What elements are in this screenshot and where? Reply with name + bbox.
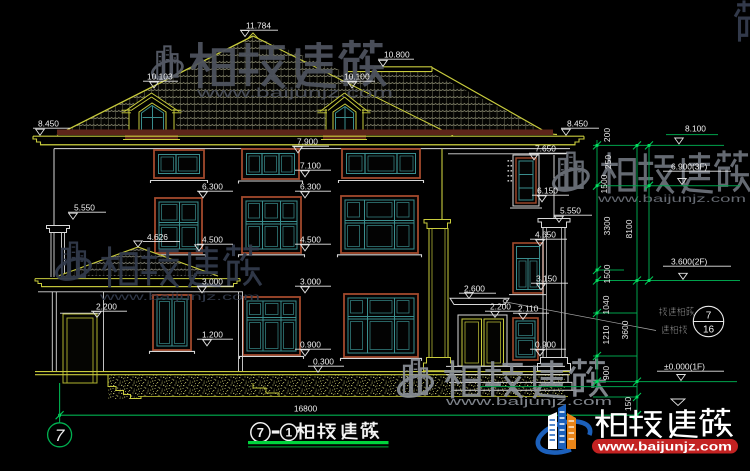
svg-text:±0.000(1F): ±0.000(1F)	[664, 362, 705, 372]
svg-text:250: 250	[603, 155, 613, 169]
svg-text:6.300: 6.300	[202, 182, 223, 192]
svg-text:1: 1	[285, 426, 292, 440]
svg-text:1040: 1040	[601, 295, 611, 314]
svg-text:3600: 3600	[620, 320, 630, 339]
svg-text:7.650: 7.650	[535, 144, 556, 154]
svg-text:3.000: 3.000	[300, 277, 321, 287]
svg-text:0.900: 0.900	[300, 340, 321, 350]
svg-text:7: 7	[55, 426, 65, 445]
svg-text:1.200: 1.200	[202, 330, 223, 340]
svg-text:7: 7	[706, 311, 712, 322]
svg-text:1210: 1210	[601, 325, 611, 344]
svg-text:2.110: 2.110	[518, 304, 539, 314]
svg-text:6.900(3F): 6.900(3F)	[671, 162, 708, 172]
svg-text:6.150: 6.150	[537, 186, 558, 196]
svg-text:0.900: 0.900	[535, 340, 556, 350]
svg-text:4.650: 4.650	[535, 230, 556, 240]
svg-text:1500: 1500	[602, 264, 612, 283]
svg-text:200: 200	[602, 128, 612, 142]
svg-text:10.103: 10.103	[147, 72, 173, 82]
svg-text:3.150: 3.150	[536, 274, 557, 284]
svg-text:www.baijunjz.com: www.baijunjz.com	[597, 440, 732, 454]
svg-text:3.000: 3.000	[202, 277, 223, 287]
svg-text:900: 900	[601, 366, 611, 380]
svg-text:4.626: 4.626	[147, 232, 168, 242]
svg-text:10.800: 10.800	[384, 50, 410, 60]
svg-text:8100: 8100	[624, 219, 634, 238]
svg-text:150: 150	[623, 397, 633, 411]
svg-text:2.200: 2.200	[490, 302, 511, 312]
svg-text:7.100: 7.100	[300, 161, 321, 171]
svg-text:6.300: 6.300	[300, 182, 321, 192]
svg-text:5.550: 5.550	[560, 206, 581, 216]
svg-text:www.baijunjz.com: www.baijunjz.com	[444, 396, 612, 408]
svg-text:8.450: 8.450	[38, 119, 59, 129]
svg-text:5.550: 5.550	[74, 203, 95, 213]
svg-text:8.450: 8.450	[567, 119, 588, 129]
svg-text:8.100: 8.100	[685, 124, 706, 134]
svg-text:1500: 1500	[599, 174, 609, 193]
svg-text:0.300: 0.300	[313, 357, 334, 367]
svg-text:16800: 16800	[294, 403, 318, 413]
svg-text:11.784: 11.784	[246, 21, 271, 31]
svg-text:7: 7	[257, 425, 264, 440]
svg-text:3300: 3300	[602, 216, 612, 235]
svg-text:7.900: 7.900	[297, 137, 318, 147]
svg-text:4.500: 4.500	[300, 235, 321, 245]
svg-text:2.200: 2.200	[96, 302, 117, 312]
svg-text:4.500: 4.500	[202, 235, 223, 245]
svg-text:www.baijunjz.com: www.baijunjz.com	[98, 291, 260, 303]
svg-text:3.600(2F): 3.600(2F)	[671, 257, 708, 267]
svg-text:10.100: 10.100	[344, 72, 370, 82]
svg-text:16: 16	[703, 325, 715, 336]
svg-text:www.baijunjz.com: www.baijunjz.com	[596, 193, 746, 205]
svg-text:www.baijunjz.com: www.baijunjz.com	[195, 86, 393, 100]
